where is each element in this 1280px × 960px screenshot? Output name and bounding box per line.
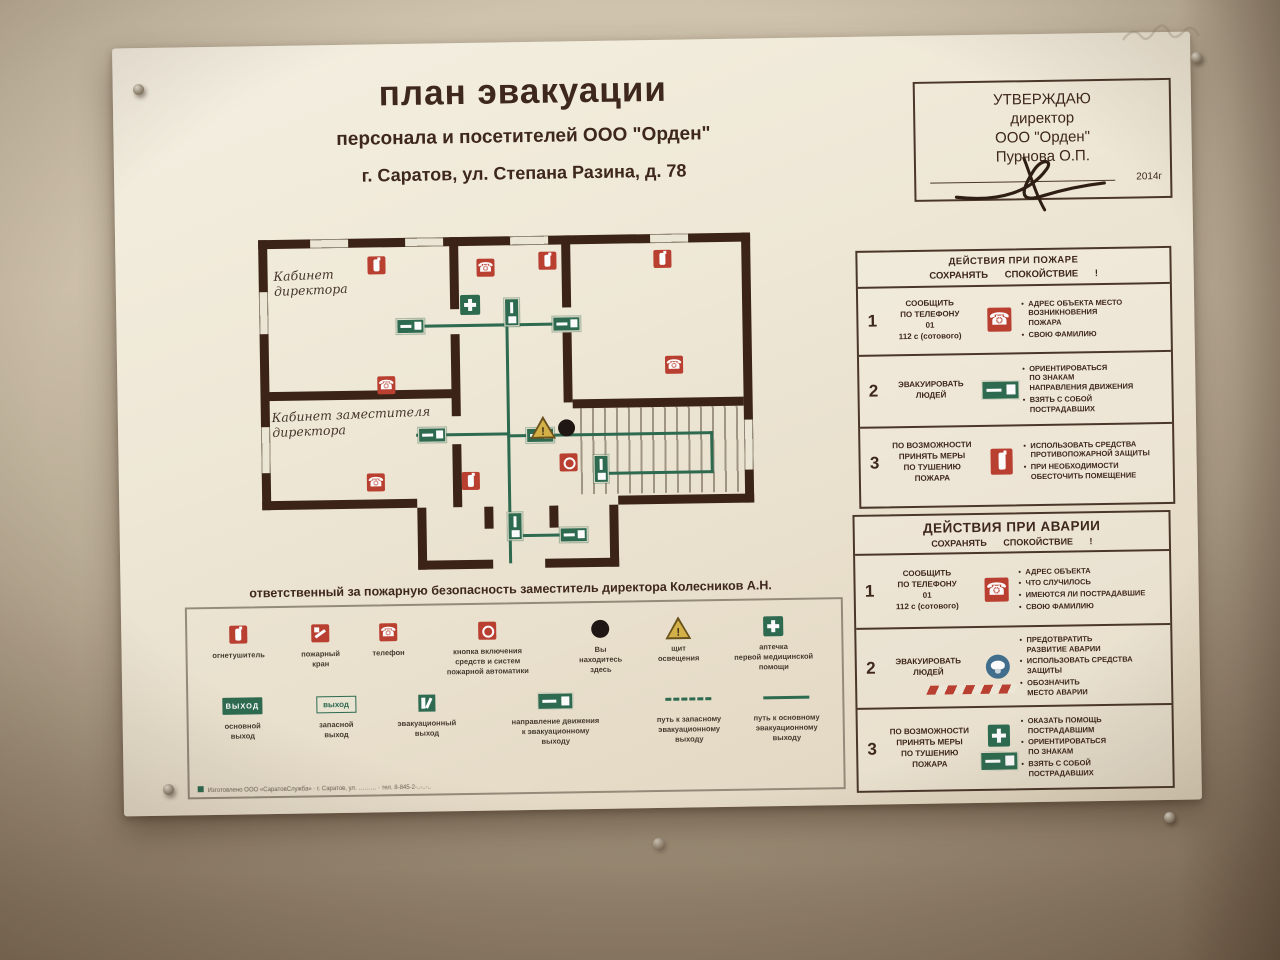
push-pin bbox=[163, 784, 174, 795]
exit-direction-sign-icon bbox=[593, 455, 608, 483]
exit-direction-sign-icon bbox=[504, 298, 519, 326]
legend-item: аптечка первой медицинской помощи bbox=[713, 609, 834, 672]
approval-box: УТВЕРЖДАЮ директор ООО "Орден" Пурнова О… bbox=[913, 78, 1173, 202]
legend-item: направление движения к эвакуационному вы… bbox=[471, 684, 640, 748]
legend-item: кнопка включения средств и систем пожарн… bbox=[417, 614, 558, 677]
push-pin bbox=[1164, 812, 1175, 823]
exit-sign-solid-icon: ВЫХОД bbox=[222, 697, 262, 715]
entrance-doorway bbox=[744, 419, 754, 469]
fire-hydrant-icon bbox=[311, 624, 329, 642]
window bbox=[405, 237, 443, 247]
you-are-here-icon bbox=[591, 620, 609, 638]
pencil-scribble bbox=[1115, 8, 1225, 53]
window bbox=[510, 236, 548, 246]
legend-item: огнетушитель bbox=[195, 618, 282, 681]
direction-sign-icon bbox=[537, 692, 573, 710]
legend-item: телефон bbox=[359, 616, 418, 678]
instruction-point: ЧТО СЛУЧИЛОСЬ bbox=[1018, 576, 1165, 588]
exit-direction-sign-icon bbox=[980, 751, 1018, 771]
accident-step-3: 3 ПО ВОЗМОЖНОСТИ ПРИНЯТЬ МЕРЫ ПО ТУШЕНИЮ… bbox=[857, 703, 1172, 790]
evacuation-route bbox=[710, 431, 714, 473]
fire-step-3: 3 ПО ВОЗМОЖНОСТИ ПРИНЯТЬ МЕРЫ ПО ТУШЕНИЮ… bbox=[860, 422, 1173, 499]
exit-direction-sign-icon bbox=[396, 319, 424, 334]
window bbox=[259, 292, 269, 334]
instruction-point: ВЗЯТЬ С СОБОЙ ПОСТРАДАВШИХ bbox=[1023, 393, 1168, 415]
instruction-point: ИСПОЛЬЗОВАТЬ СРЕДСТВА ПРОТИВОПОЖАРНОЙ ЗА… bbox=[1023, 438, 1168, 460]
first-aid-kit-icon bbox=[460, 295, 480, 315]
telephone-icon bbox=[984, 577, 1008, 601]
fire-extinguisher-icon bbox=[229, 625, 247, 643]
legend-item: путь к запасному эвакуационному выходу bbox=[640, 682, 737, 745]
legend-item: ВЫХОД основной выход bbox=[196, 689, 289, 752]
telephone-icon bbox=[987, 307, 1011, 331]
fire-extinguisher-icon bbox=[462, 472, 480, 490]
accident-panel-header: ДЕЙСТВИЯ ПРИ АВАРИИ СОХРАНЯТЬ СПОКОЙСТВИ… bbox=[854, 512, 1169, 556]
fire-panel-subtitle: СОХРАНЯТЬ СПОКОЙСТВИЕ ! bbox=[860, 267, 1168, 283]
legend-row-2: ВЫХОД основной выход выход запасной выхо… bbox=[196, 681, 835, 752]
wall bbox=[545, 558, 619, 568]
wall bbox=[549, 506, 558, 528]
accident-step-2: 2 ЭВАКУИРОВАТЬ ЛЮДЕЙ ПРЕДОТВРАТИТЬ РАЗВИ… bbox=[856, 623, 1171, 708]
push-pin bbox=[133, 84, 144, 95]
instruction-point: ОКАЗАТЬ ПОМОЩЬ ПОСТРАДАВШИМ bbox=[1021, 714, 1168, 736]
fire-panel-header: ДЕЙСТВИЯ ПРИ ПОЖАРЕ СОХРАНЯТЬ СПОКОЙСТВИ… bbox=[857, 248, 1170, 289]
fire-automatics-button-icon bbox=[559, 453, 577, 471]
push-pin bbox=[653, 838, 664, 849]
exit-direction-sign-icon bbox=[507, 512, 522, 540]
push-pin bbox=[1191, 52, 1202, 63]
instruction-point: ПРЕДОТВРАТИТЬ РАЗВИТИЕ АВАРИИ bbox=[1019, 633, 1166, 655]
fire-step-1: 1 СООБЩИТЬ ПО ТЕЛЕФОНУ 01 112 с (сотовог… bbox=[858, 284, 1171, 355]
evacuation-exit-icon bbox=[418, 694, 435, 711]
telephone-icon bbox=[476, 259, 494, 277]
fire-automatics-button-icon bbox=[478, 622, 496, 640]
fire-actions-panel: ДЕЙСТВИЯ ПРИ ПОЖАРЕ СОХРАНЯТЬ СПОКОЙСТВИ… bbox=[855, 246, 1175, 509]
instruction-point: ВЗЯТЬ С СОБОЙ ПОСТРАДАВШИХ bbox=[1021, 757, 1168, 779]
accident-panel-subtitle: СОХРАНЯТЬ СПОКОЙСТВИЕ ! bbox=[857, 535, 1167, 550]
wall bbox=[266, 389, 454, 401]
hazard-stripe-icon bbox=[926, 684, 1018, 694]
wall bbox=[561, 235, 571, 307]
wall bbox=[618, 493, 754, 504]
telephone-icon bbox=[377, 376, 395, 394]
first-aid-kit-icon bbox=[763, 616, 783, 636]
accident-panel-title: ДЕЙСТВИЯ ПРИ АВАРИИ bbox=[857, 517, 1167, 537]
exit-sign-outline-icon: выход bbox=[316, 696, 356, 714]
fire-extinguisher-icon bbox=[367, 256, 385, 274]
accident-actions-panel: ДЕЙСТВИЯ ПРИ АВАРИИ СОХРАНЯТЬ СПОКОЙСТВИ… bbox=[852, 510, 1174, 793]
poster-subtitle: персонала и посетителей ООО "Орден" bbox=[243, 122, 803, 153]
instruction-point: ОБОЗНАЧИТЬ МЕСТО АВАРИИ bbox=[1020, 676, 1167, 698]
legend-item: эвакуационный выход bbox=[383, 686, 470, 749]
instruction-point: ОРИЕНТИРОВАТЬСЯ ПО ЗНАКАМ НАПРАВЛЕНИЯ ДВ… bbox=[1022, 362, 1167, 394]
legend-item: щит освещения bbox=[643, 611, 714, 673]
instruction-point: АДРЕС ОБЪЕКТА bbox=[1018, 565, 1165, 577]
room-label-director: Кабинет директора bbox=[273, 266, 348, 299]
telephone-icon bbox=[665, 356, 683, 374]
poster-header: план эвакуации персонала и посетителей О… bbox=[242, 68, 804, 189]
floor-plan: Кабинет директора Кабинет заместителя ди… bbox=[255, 224, 762, 579]
exit-direction-sign-icon bbox=[552, 316, 580, 331]
wall-photo: план эвакуации персонала и посетителей О… bbox=[0, 0, 1280, 960]
exit-direction-sign-icon bbox=[560, 527, 588, 542]
legend-box: огнетушитель пожарный кран телефон кнопк… bbox=[185, 597, 846, 799]
instruction-point: ПРИ НЕОБХОДИМОСТИ ОБЕСТОЧИТЬ ПОМЕЩЕНИЕ bbox=[1024, 460, 1169, 482]
instruction-point: АДРЕС ОБЪЕКТА МЕСТО ВОЗНИКНОВЕНИЯ ПОЖАРА bbox=[1021, 296, 1166, 328]
room-label-deputy: Кабинет заместителя директора bbox=[271, 403, 431, 440]
legend-item: путь к основному эвакуационному выходу bbox=[738, 681, 835, 744]
telephone-icon bbox=[379, 623, 397, 641]
accident-step-1: 1 СООБЩИТЬ ПО ТЕЛЕФОНУ 01 112 с (сотовог… bbox=[855, 551, 1170, 628]
legend-row-1: огнетушитель пожарный кран телефон кнопк… bbox=[195, 609, 834, 680]
exit-direction-sign-icon bbox=[981, 380, 1019, 400]
window bbox=[650, 233, 688, 243]
dashed-route-icon bbox=[666, 697, 712, 701]
instruction-point: СВОЮ ФАМИЛИЮ bbox=[1022, 328, 1167, 340]
gas-mask-icon bbox=[986, 654, 1010, 678]
wall bbox=[449, 237, 459, 309]
instruction-point: СВОЮ ФАМИЛИЮ bbox=[1019, 600, 1166, 612]
fire-extinguisher-icon bbox=[990, 448, 1012, 474]
legend-item: пожарный кран bbox=[281, 617, 360, 679]
instruction-point: ИСПОЛЬЗОВАТЬ СРЕДСТВА ЗАЩИТЫ bbox=[1020, 654, 1167, 676]
instruction-point: ИМЕЮТСЯ ЛИ ПОСТРАДАВШИЕ bbox=[1019, 588, 1166, 600]
telephone-icon bbox=[367, 473, 385, 491]
wall bbox=[484, 507, 493, 529]
solid-route-icon bbox=[763, 695, 809, 699]
window bbox=[310, 239, 348, 249]
legend-item: Вы находитесь здесь bbox=[557, 612, 644, 675]
manufacturer-line: Изготовлено ООО «СаратовСлужба» · г. Сар… bbox=[198, 776, 836, 794]
wall bbox=[563, 332, 573, 402]
wall bbox=[452, 444, 462, 507]
evacuation-plan-poster: план эвакуации персонала и посетителей О… bbox=[112, 32, 1202, 817]
instruction-point: ОРИЕНТИРОВАТЬСЯ ПО ЗНАКАМ bbox=[1021, 735, 1168, 757]
approval-year: 2014г bbox=[1136, 167, 1162, 186]
window bbox=[261, 427, 271, 473]
wall bbox=[262, 499, 417, 510]
responsible-line: ответственный за пожарную безопасность з… bbox=[201, 577, 821, 601]
fire-step-2: 2 ЭВАКУИРОВАТЬ ЛЮДЕЙ ОРИЕНТИРОВАТЬСЯ ПО … bbox=[859, 350, 1172, 427]
first-aid-kit-icon bbox=[988, 724, 1010, 746]
poster-address: г. Саратов, ул. Степана Разина, д. 78 bbox=[244, 159, 804, 189]
legend-item: выход запасной выход bbox=[290, 688, 383, 751]
signature-scribble bbox=[946, 151, 1117, 214]
fire-panel-title: ДЕЙСТВИЯ ПРИ ПОЖАРЕ bbox=[859, 253, 1167, 269]
wall bbox=[418, 560, 493, 570]
fire-extinguisher-icon bbox=[653, 250, 671, 268]
poster-title: план эвакуации bbox=[242, 68, 803, 117]
wall bbox=[451, 334, 461, 416]
fire-extinguisher-icon bbox=[538, 252, 556, 270]
warning-triangle-icon bbox=[665, 616, 691, 639]
